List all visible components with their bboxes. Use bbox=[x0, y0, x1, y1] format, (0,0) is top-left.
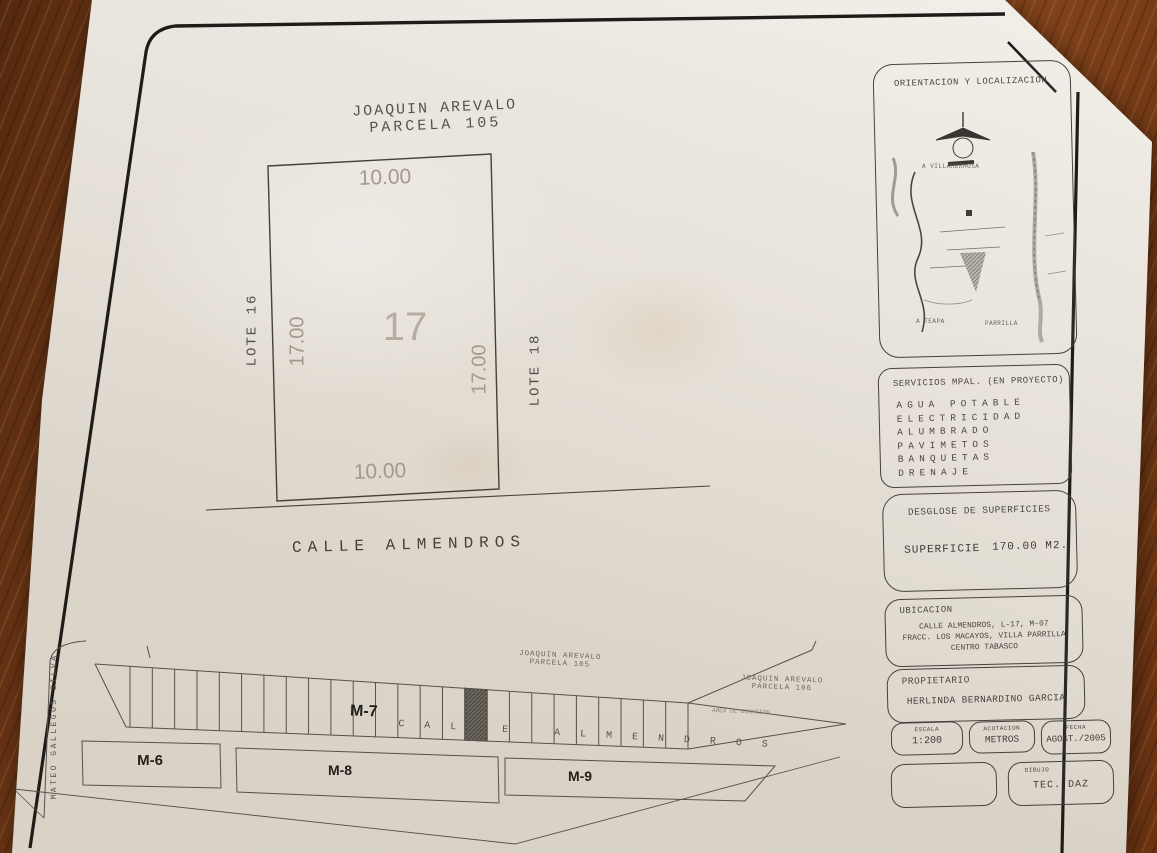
plan-sheet-paper: JOAQUIN AREVALO PARCELA 105 10.00 17 17.… bbox=[0, 0, 1157, 853]
surface-value: 170.00 M2. bbox=[992, 540, 1068, 554]
strip-street-left: MATEO GALLEGOS SILVA bbox=[50, 644, 59, 809]
services-panel: SERVICIOS MPAL. (EN PROYECTO) AGUA POTAB… bbox=[878, 364, 1073, 489]
drawing-box-label: DIBUJO bbox=[1025, 766, 1050, 774]
drawing-box: DIBUJO TEC. DAZ bbox=[1007, 760, 1114, 807]
surface-label: SUPERFICIE bbox=[904, 543, 980, 557]
lot-neighbor-left: LOTE 16 bbox=[245, 283, 261, 378]
orientation-panel: ORIENTACION Y LOCALIZACION bbox=[872, 60, 1077, 359]
drawing-box-value: TEC. DAZ bbox=[1009, 779, 1113, 793]
lot-dim-top: 10.00 bbox=[340, 164, 431, 191]
strip-parcel-above: JOAQUIN AREVALO PARCELA 105 bbox=[500, 649, 621, 671]
surfaces-panel: DESGLOSE DE SUPERFICIES SUPERFICIE 170.0… bbox=[882, 490, 1078, 593]
lot-dim-right: 17.00 bbox=[469, 330, 492, 410]
plan-title: JOAQUIN AREVALO PARCELA 105 bbox=[329, 95, 540, 138]
block-m8-label: M-8 bbox=[300, 762, 380, 778]
map-label-parrilla: PARRILLA bbox=[985, 320, 1018, 327]
owner-panel-title: PROPIETARIO bbox=[902, 674, 970, 687]
date-box-label: FECHA bbox=[1042, 723, 1110, 732]
location-panel: UBICACION CALLE ALMENDROS, L-17, M-07 FR… bbox=[884, 595, 1084, 668]
scale-box-value: 1:200 bbox=[892, 735, 962, 748]
services-panel-title: SERVICIOS MPAL. (EN PROYECTO) bbox=[893, 375, 1064, 389]
owner-name: HERLINDA BERNARDINO GARCIA bbox=[888, 692, 1084, 708]
lot-number: 17 bbox=[375, 305, 435, 350]
strip-street-label: CALLE ALMENDROS bbox=[398, 719, 788, 752]
lot-neighbor-right: LOTE 18 bbox=[528, 323, 544, 418]
owner-panel: PROPIETARIO HERLINDA BERNARDINO GARCIA bbox=[886, 665, 1085, 724]
lot-dim-bottom: 10.00 bbox=[335, 458, 426, 485]
date-box-value: AGOST./2005 bbox=[1042, 733, 1110, 745]
units-box-value: METROS bbox=[970, 733, 1034, 746]
map-label-villahermosa: A VILLAHERMOSA bbox=[922, 163, 979, 170]
scale-box-label: ESCALA bbox=[892, 725, 962, 734]
service-item: DRENAJE bbox=[898, 463, 1027, 480]
block-m6-label: M-6 bbox=[110, 752, 190, 769]
lot-dim-left: 17.00 bbox=[287, 302, 310, 382]
date-box: FECHA AGOST./2005 bbox=[1041, 719, 1112, 755]
strip-annotation: AREA DE DONACION bbox=[712, 707, 770, 716]
plan-sheet-wrap: JOAQUIN AREVALO PARCELA 105 10.00 17 17.… bbox=[0, 0, 1157, 853]
map-label-teapa: A TEAPA bbox=[916, 318, 945, 325]
units-box: ACOTACION METROS bbox=[969, 720, 1036, 754]
blank-box bbox=[890, 762, 997, 809]
surfaces-panel-title: DESGLOSE DE SUPERFICIES bbox=[883, 503, 1075, 519]
main-lot-outline bbox=[206, 154, 710, 510]
block-m7-label: M-7 bbox=[350, 703, 378, 722]
block-m9-label: M-9 bbox=[540, 768, 620, 784]
units-box-label: ACOTACION bbox=[970, 724, 1034, 733]
orientation-panel-title: ORIENTACION Y LOCALIZACION bbox=[894, 75, 1048, 89]
location-panel-title: UBICACION bbox=[899, 605, 952, 616]
main-street-label: CALLE ALMENDROS bbox=[292, 533, 526, 557]
scale-box: ESCALA 1:200 bbox=[891, 721, 964, 756]
strip-parcel-right: JOAQUIN AREVALO PARCELA 106 bbox=[722, 674, 842, 694]
